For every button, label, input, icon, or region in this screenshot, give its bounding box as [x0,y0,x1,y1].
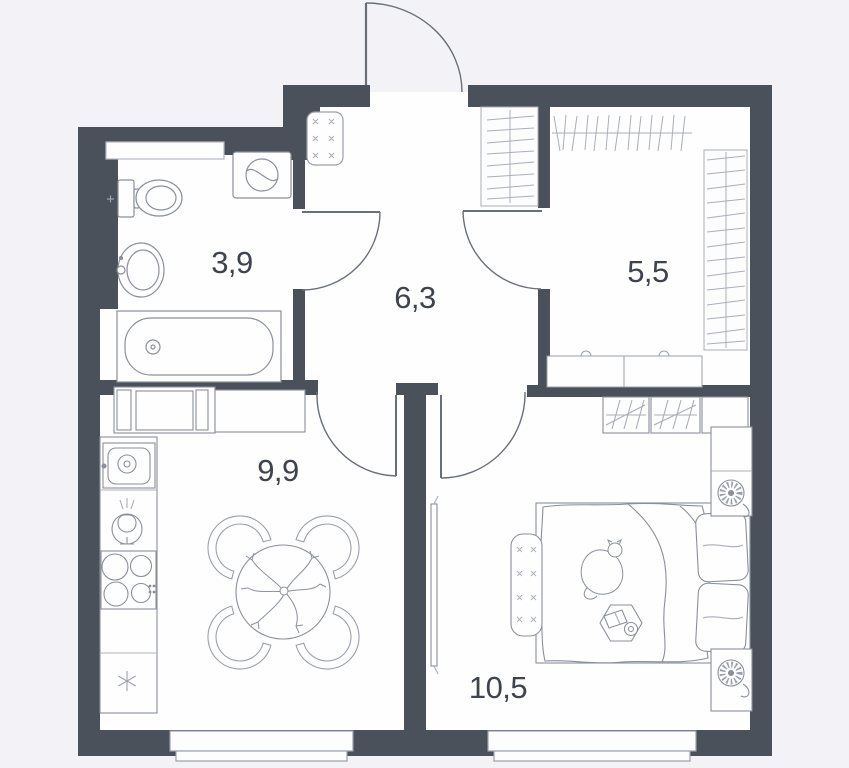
hallway-area-label: 6,3 [394,280,436,315]
kitchen-window [170,731,353,761]
kitchen-sink [102,443,155,488]
clothes-rail-right [704,150,747,350]
toilet [107,180,182,217]
wall-wardrobe-west-upper [538,107,550,208]
wall-bathroom-east-lower [293,289,305,383]
wardrobe-area-label: 5,5 [627,254,669,289]
wall-partition-cap [396,383,438,395]
bathroom-sink [117,243,164,297]
entrance-door [366,3,462,92]
worktop [215,390,305,432]
plumbing-chase [98,142,118,309]
nightstand-top [711,427,752,517]
tv [431,496,438,674]
wall-bathroom-east-upper [293,157,305,209]
wall-shelf [106,142,224,159]
low-cabinets [547,351,702,387]
wall-top-right [468,85,772,107]
bedroom-area-label: 10,5 [469,670,527,705]
kitchen-area-label: 9,9 [257,453,299,488]
shoe-cabinet [307,112,343,165]
bedroom-window [488,731,696,761]
stove [101,551,156,609]
floor-plan: 3,9 6,3 5,5 9,9 10,5 [0,0,849,768]
laundry-cabinet [114,387,215,433]
bedside-bench [511,534,542,636]
wall-right [750,85,772,755]
bathroom-area-label: 3,9 [211,245,253,280]
wall-partition [404,395,426,732]
nightstand-bottom [711,649,752,711]
wall-left [78,127,100,755]
washing-machine [233,152,291,198]
coat-rack [481,107,538,206]
bathtub [117,311,281,382]
